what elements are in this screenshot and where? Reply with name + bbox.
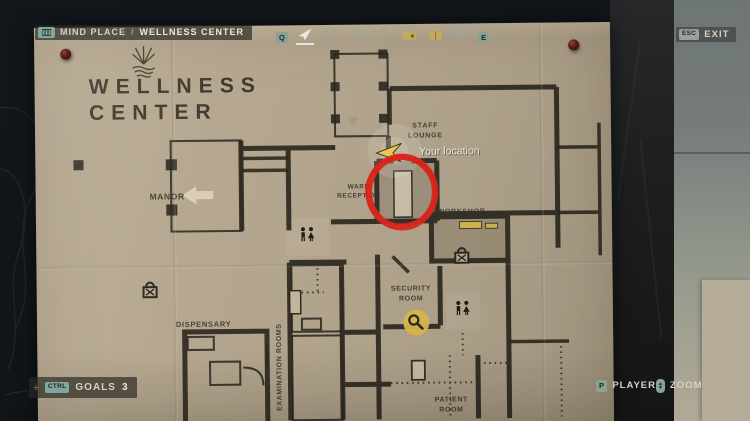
mouse-wheel-icon: ▲▼ <box>656 379 665 393</box>
case-file-icon <box>325 28 338 41</box>
breadcrumb-location: MIND PLACE <box>60 28 126 37</box>
prev-tab-key[interactable]: Q <box>276 32 288 44</box>
ctrl-key: CTRL <box>45 382 70 393</box>
map-key-icon <box>38 27 55 38</box>
zoom-control[interactable]: ▲▼ ZOOM <box>656 379 703 393</box>
alan-wake-map-screen: WELLNESS CENTER <box>0 0 750 421</box>
tab-evidence-folder[interactable] <box>400 28 418 48</box>
breadcrumb-separator: / <box>131 28 135 37</box>
map-pin <box>568 39 579 50</box>
weapon-icon <box>453 28 469 40</box>
breadcrumb-sublocation: WELLNESS CENTER <box>140 28 245 37</box>
player-label: PLAYER <box>612 381 656 391</box>
goal-marker-icon: ✛ <box>33 384 39 392</box>
tab-case-file[interactable] <box>322 28 340 48</box>
map-pin <box>60 49 71 60</box>
p-key: P <box>596 380 607 392</box>
esc-key: ESC <box>679 29 699 40</box>
goals-button[interactable]: ✛ CTRL GOALS 3 <box>29 377 137 398</box>
dark-wall-strip <box>610 0 674 421</box>
zoom-label: ZOOM <box>670 381 703 391</box>
player-button[interactable]: P PLAYER <box>596 380 656 392</box>
goals-label: GOALS <box>75 383 116 393</box>
evidence-folder-icon <box>402 28 417 41</box>
manuscript-icon <box>351 28 364 41</box>
tab-weapon[interactable] <box>452 28 470 47</box>
exit-label: EXIT <box>704 30 729 40</box>
exit-button[interactable]: ESC EXIT <box>676 27 736 42</box>
mind-place-tabs: Q <box>276 27 489 48</box>
breadcrumb: MIND PLACE / WELLNESS CENTER <box>35 25 252 40</box>
side-board-panel <box>674 0 750 421</box>
paper-shading <box>34 22 614 421</box>
tab-inventory-box[interactable] <box>426 28 444 48</box>
tab-globe[interactable] <box>374 27 392 48</box>
tab-manuscript[interactable] <box>348 28 366 48</box>
inventory-box-icon <box>428 28 443 41</box>
globe-icon <box>376 27 390 41</box>
goals-count: 3 <box>122 383 129 393</box>
location-arrow-icon <box>298 28 312 41</box>
wellness-center-map-paper[interactable]: WELLNESS CENTER <box>34 22 614 421</box>
tab-map[interactable] <box>296 28 314 48</box>
next-tab-key[interactable]: E <box>478 32 489 44</box>
